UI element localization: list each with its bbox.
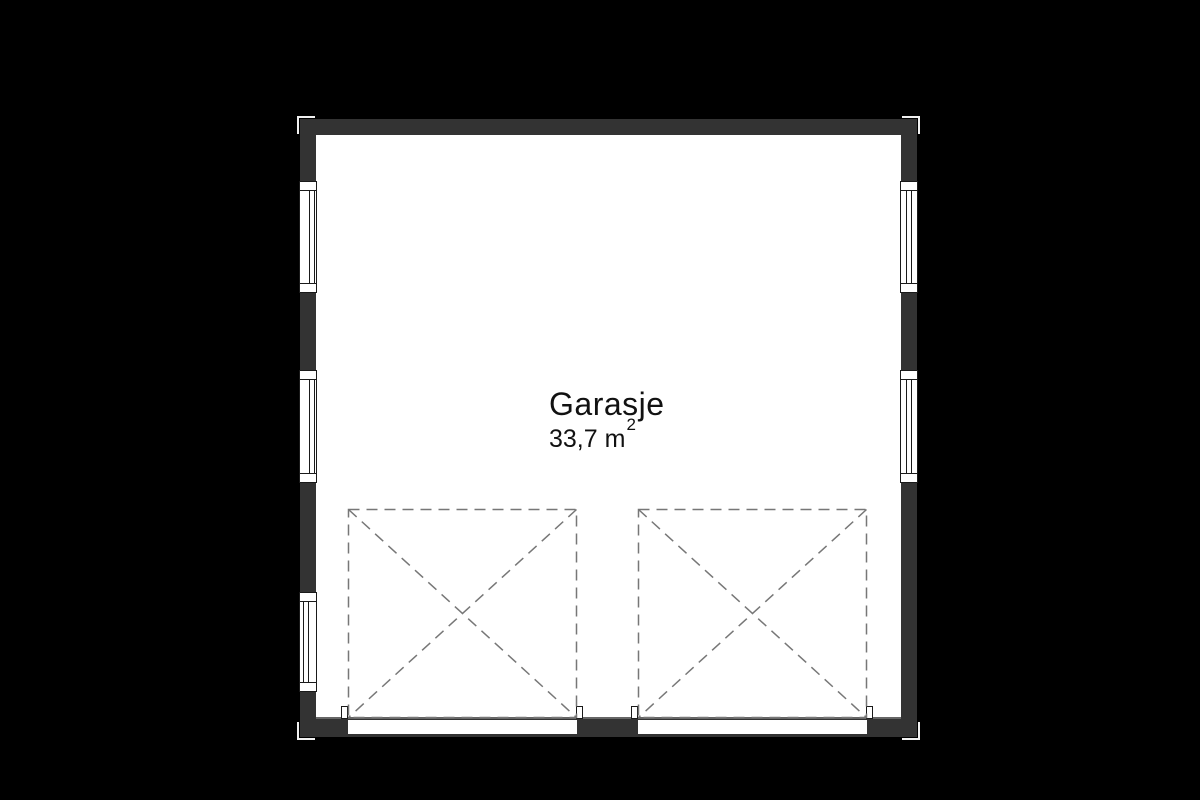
door-jamb bbox=[631, 706, 638, 719]
window-glass-line bbox=[906, 191, 912, 283]
door-jamb bbox=[866, 706, 873, 719]
wall-top bbox=[300, 119, 917, 135]
window-frame-line bbox=[300, 682, 316, 683]
window-symbol bbox=[299, 181, 317, 293]
threshold-line bbox=[316, 717, 901, 719]
garage-door-opening-right bbox=[638, 720, 867, 734]
window-glass-line bbox=[906, 380, 912, 473]
window-glass-line bbox=[303, 602, 309, 682]
window-frame-line bbox=[901, 473, 917, 474]
window-symbol bbox=[900, 181, 918, 293]
window-symbol bbox=[299, 370, 317, 483]
floorplan-canvas: Garasje 33,7 m2 bbox=[0, 0, 1200, 800]
corner-mark-bottom-right bbox=[902, 722, 920, 740]
window-glass-line bbox=[309, 380, 315, 473]
window-frame-line bbox=[300, 283, 316, 284]
door-jamb bbox=[576, 706, 583, 719]
garage-door-opening-left bbox=[348, 720, 577, 734]
area-superscript: 2 bbox=[626, 415, 635, 434]
window-glass-line bbox=[309, 191, 315, 283]
room-label: Garasje bbox=[549, 388, 665, 422]
window-frame-line bbox=[300, 473, 316, 474]
corner-mark-top-left bbox=[297, 116, 315, 134]
garage-building: Garasje 33,7 m2 bbox=[300, 119, 917, 737]
area-value: 33,7 m bbox=[549, 425, 625, 453]
corner-mark-top-right bbox=[902, 116, 920, 134]
window-symbol bbox=[900, 370, 918, 483]
window-symbol bbox=[299, 592, 317, 692]
corner-mark-bottom-left bbox=[297, 722, 315, 740]
area-label: 33,7 m2 bbox=[549, 426, 635, 452]
window-frame-line bbox=[901, 283, 917, 284]
door-jamb bbox=[341, 706, 348, 719]
